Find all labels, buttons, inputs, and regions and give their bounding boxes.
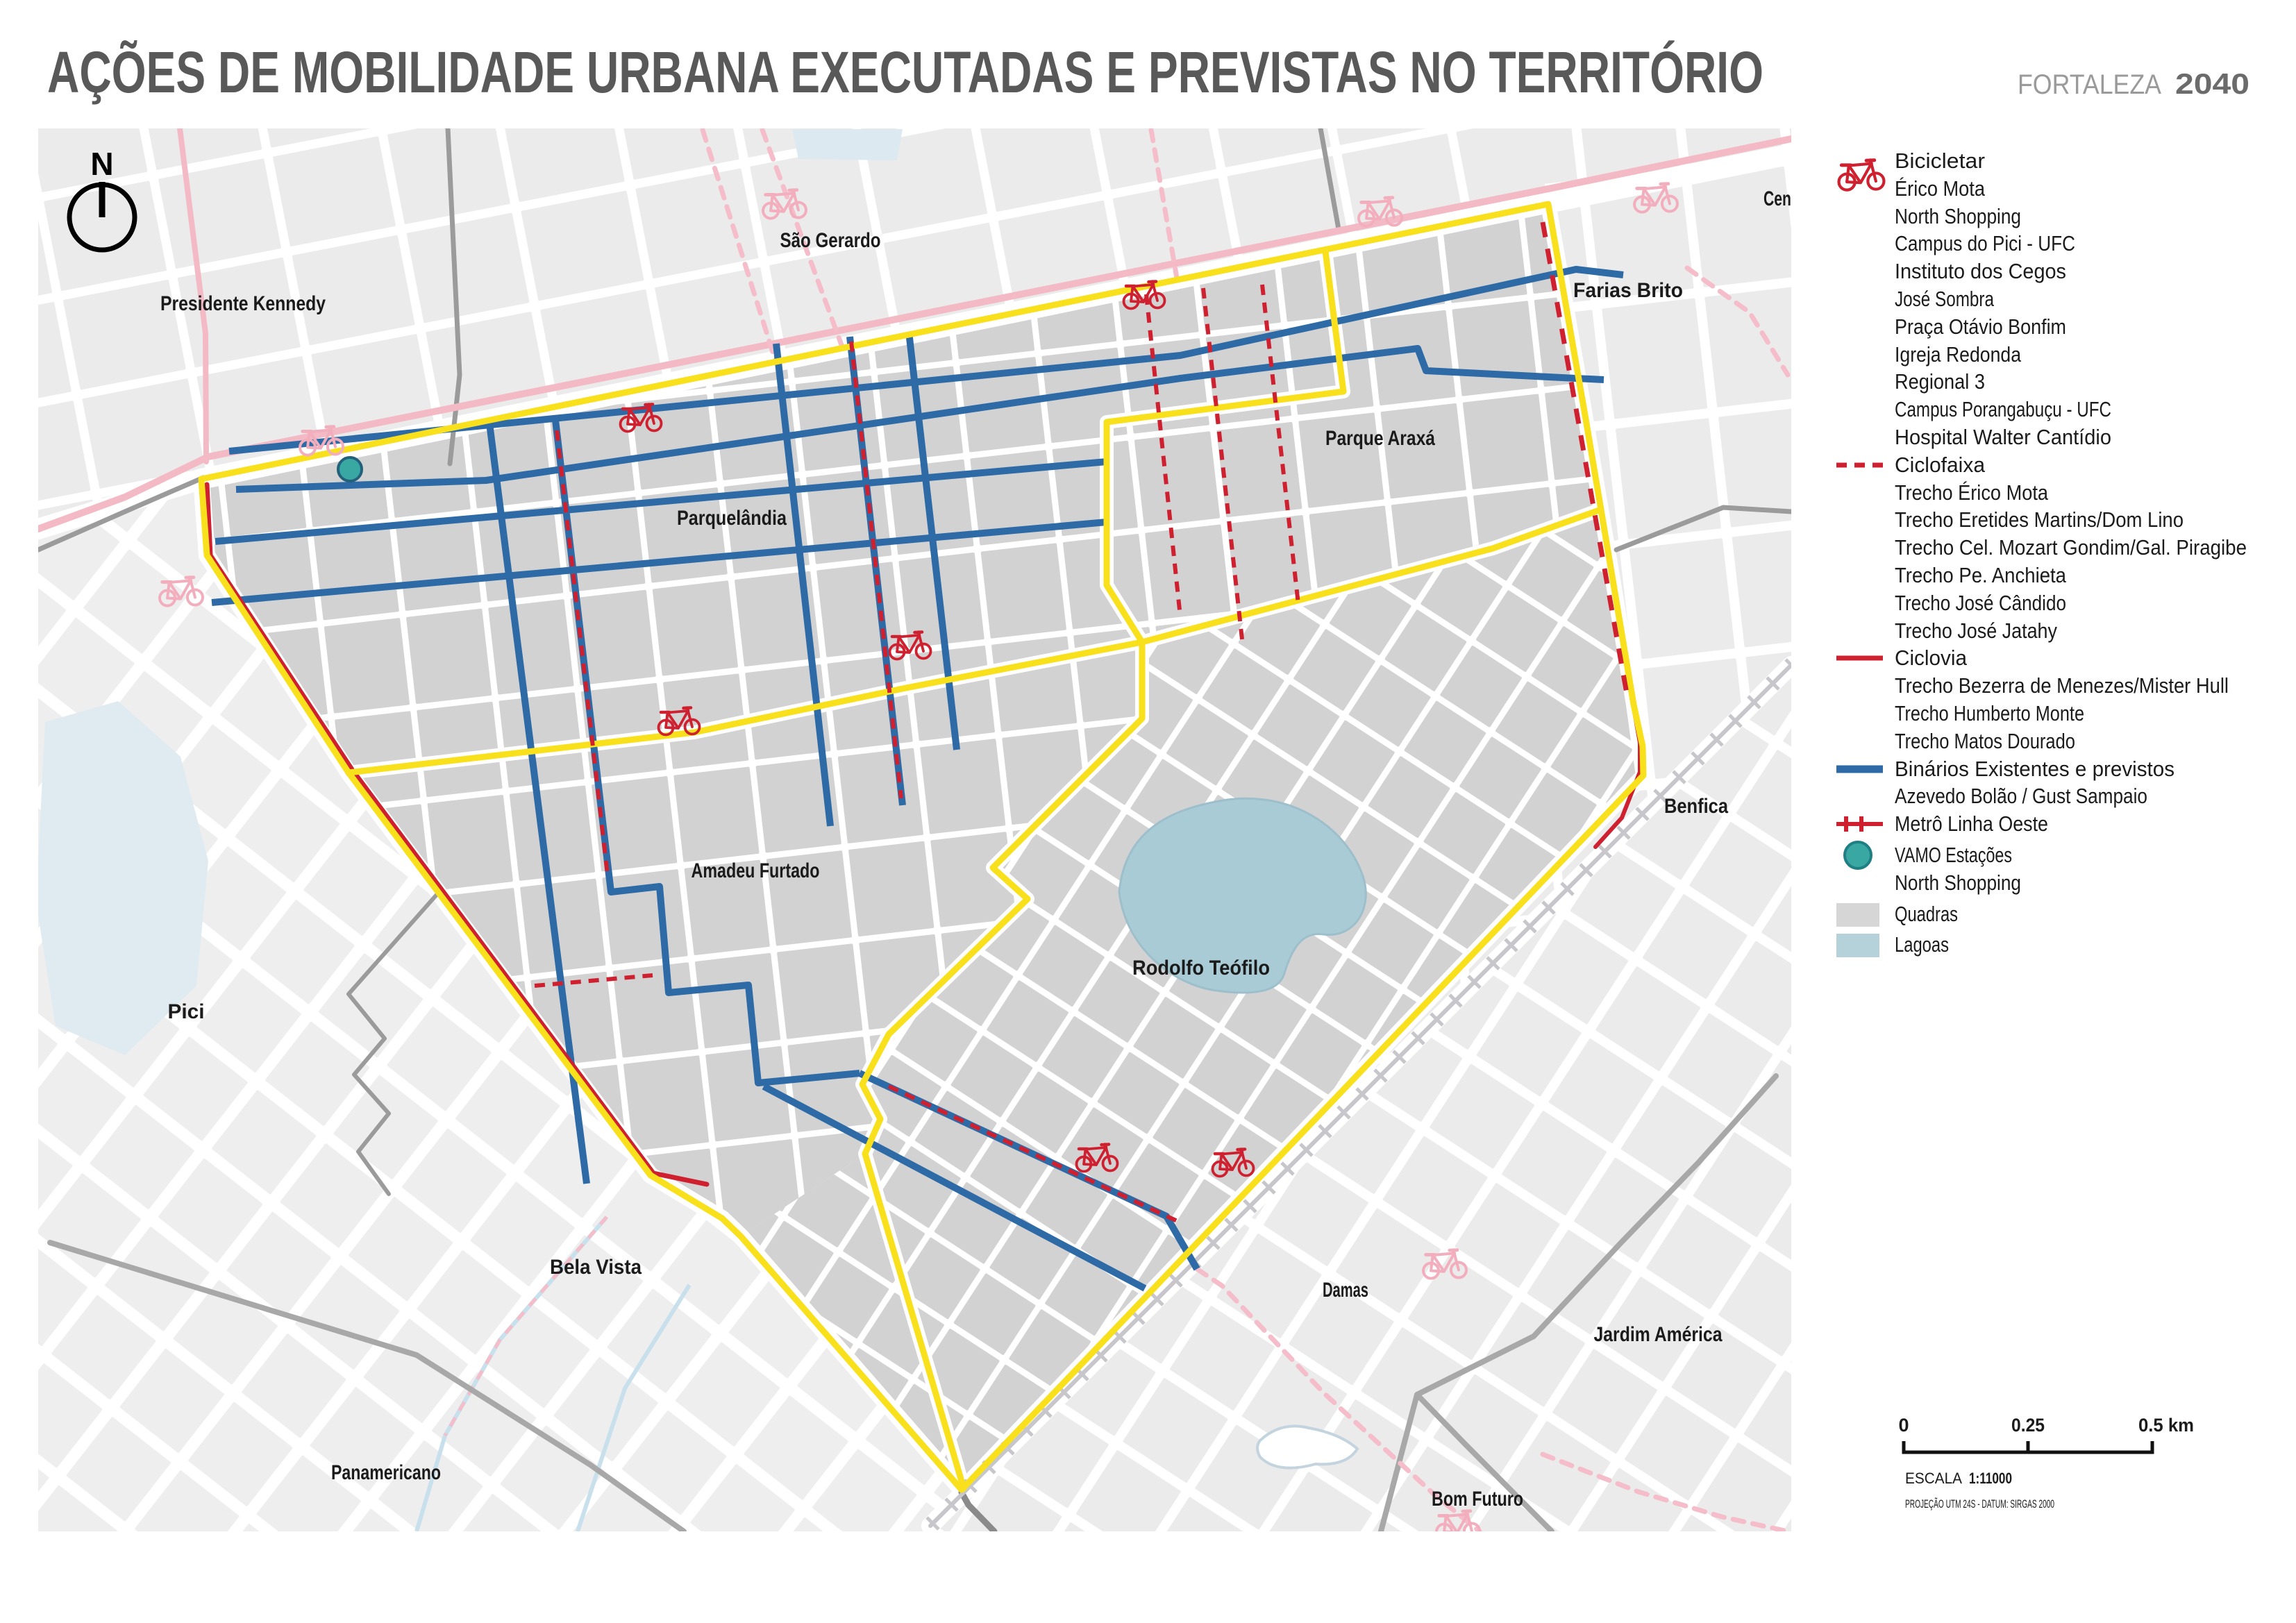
svg-text:São Gerardo: São Gerardo (780, 229, 881, 252)
svg-text:Jardim América: Jardim América (1594, 1323, 1723, 1346)
svg-text:AÇÕES DE MOBILIDADE URBANA EXE: AÇÕES DE MOBILIDADE URBANA EXECUTADAS E … (47, 40, 1763, 105)
svg-text:Igreja Redonda: Igreja Redonda (1895, 342, 2022, 367)
svg-text:Parquelândia: Parquelândia (677, 507, 787, 530)
svg-text:Bela Vista: Bela Vista (550, 1256, 642, 1279)
svg-text:Amadeu Furtado: Amadeu Furtado (692, 859, 820, 882)
svg-text:North Shopping: North Shopping (1895, 204, 2021, 228)
svg-text:Érico Mota: Érico Mota (1895, 176, 1986, 201)
svg-text:Rodolfo Teófilo: Rodolfo Teófilo (1132, 957, 1270, 979)
svg-text:Pici: Pici (168, 1000, 205, 1023)
svg-text:0.25: 0.25 (2011, 1415, 2045, 1436)
svg-text:Campus do Pici - UFC: Campus do Pici - UFC (1895, 231, 2075, 255)
svg-text:Hospital Walter Cantídio: Hospital Walter Cantídio (1895, 425, 2111, 449)
svg-text:VAMO Estações: VAMO Estações (1895, 843, 2012, 867)
svg-text:José Sombra: José Sombra (1895, 287, 1995, 311)
svg-text:Presidente Kennedy: Presidente Kennedy (160, 292, 326, 315)
svg-text:Binários Existentes e previsto: Binários Existentes e previstos (1895, 757, 2175, 781)
svg-text:Metrô Linha Oeste: Metrô Linha Oeste (1895, 811, 2048, 836)
svg-text:Panamericano: Panamericano (331, 1461, 441, 1484)
svg-text:Trecho Bezerra de Menezes/Mist: Trecho Bezerra de Menezes/Mister Hull (1895, 673, 2229, 698)
svg-text:Bicicletar: Bicicletar (1895, 149, 1985, 173)
svg-text:Trecho José Cândido: Trecho José Cândido (1895, 591, 2066, 615)
svg-text:1:11000: 1:11000 (1969, 1470, 2012, 1487)
svg-text:Trecho Eretides Martins/Dom Li: Trecho Eretides Martins/Dom Lino (1895, 507, 2184, 532)
svg-text:Parque Araxá: Parque Araxá (1325, 427, 1435, 450)
svg-text:Quadras: Quadras (1895, 902, 1958, 926)
svg-text:Praça Otávio Bonfim: Praça Otávio Bonfim (1895, 314, 2066, 339)
svg-text:Ciclovia: Ciclovia (1895, 646, 1968, 670)
svg-text:North Shopping: North Shopping (1895, 871, 2021, 895)
svg-text:FORTALEZA: FORTALEZA (2018, 69, 2161, 100)
svg-text:ESCALA: ESCALA (1905, 1470, 1962, 1487)
svg-text:Azevedo Bolão / Gust Sampaio: Azevedo Bolão / Gust Sampaio (1895, 784, 2147, 808)
svg-text:Trecho Pe. Anchieta: Trecho Pe. Anchieta (1895, 563, 2067, 587)
svg-text:Cen: Cen (1763, 187, 1791, 210)
svg-text:0: 0 (1898, 1415, 1909, 1436)
svg-text:Campus Porangabuçu - UFC: Campus Porangabuçu - UFC (1895, 397, 2111, 421)
svg-text:PROJEÇÃO UTM 24S - DATUM: SIRG: PROJEÇÃO UTM 24S - DATUM: SIRGAS 2000 (1905, 1497, 2054, 1511)
svg-text:Lagoas: Lagoas (1895, 932, 1949, 957)
svg-text:Trecho Humberto Monte: Trecho Humberto Monte (1895, 701, 2084, 725)
svg-text:Benfica: Benfica (1664, 795, 1728, 818)
svg-text:Instituto dos Cegos: Instituto dos Cegos (1895, 259, 2066, 283)
svg-text:Damas: Damas (1323, 1279, 1368, 1302)
svg-text:N: N (90, 146, 113, 182)
svg-text:Trecho Matos Dourado: Trecho Matos Dourado (1895, 729, 2075, 753)
svg-text:Regional 3: Regional 3 (1895, 369, 1985, 394)
svg-text:0.5 km: 0.5 km (2138, 1415, 2194, 1436)
svg-text:Trecho Érico Mota: Trecho Érico Mota (1895, 480, 2049, 505)
svg-text:Bom Futuro: Bom Futuro (1432, 1488, 1523, 1511)
svg-text:Farias Brito: Farias Brito (1573, 279, 1683, 302)
svg-text:Trecho Cel. Mozart Gondim/Gal.: Trecho Cel. Mozart Gondim/Gal. Piragibe (1895, 535, 2247, 560)
svg-text:2040: 2040 (2175, 67, 2249, 100)
svg-text:Trecho José Jatahy: Trecho José Jatahy (1895, 619, 2057, 643)
svg-text:Ciclofaixa: Ciclofaixa (1895, 453, 1986, 477)
